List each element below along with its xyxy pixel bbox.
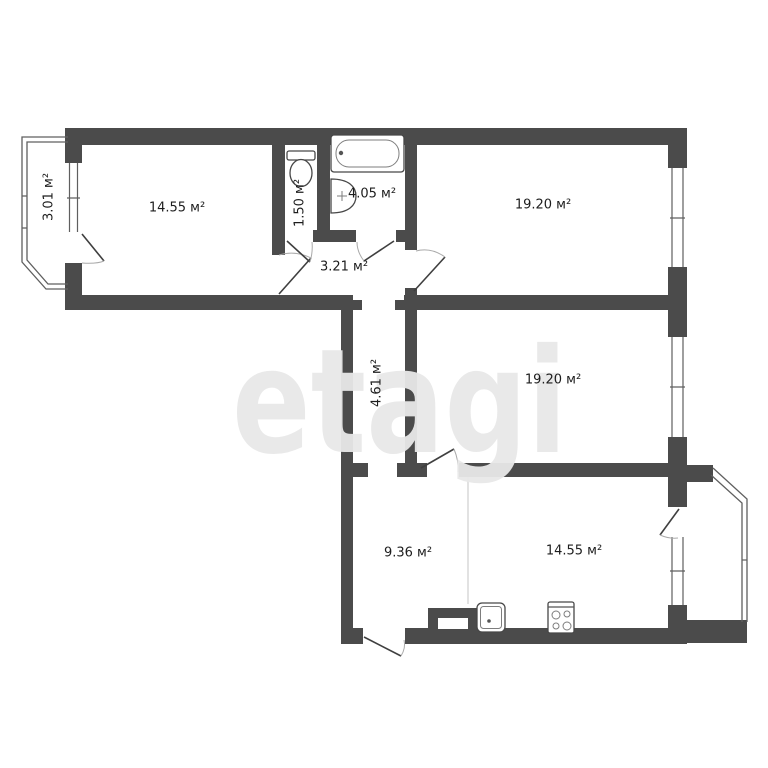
door-entrance bbox=[364, 637, 405, 656]
wall-segment bbox=[668, 437, 687, 507]
wall-segment bbox=[687, 620, 747, 643]
wall-segment bbox=[272, 145, 285, 255]
door-wc bbox=[287, 241, 312, 262]
wall-segment bbox=[404, 295, 687, 310]
watermark: etagi bbox=[232, 330, 567, 475]
kitchen-sink-icon bbox=[477, 603, 505, 632]
window-kitchen bbox=[668, 537, 687, 605]
wall-segment bbox=[396, 230, 405, 242]
wall-segment bbox=[313, 230, 356, 242]
door-balcony-left bbox=[82, 234, 104, 263]
room-label-room-top-right: 19.20 м² bbox=[515, 198, 571, 213]
wall-segment bbox=[668, 128, 687, 168]
vent-shaft bbox=[428, 608, 477, 632]
window-top-right bbox=[668, 168, 687, 267]
window-middle-right bbox=[668, 337, 687, 437]
stove-icon bbox=[548, 602, 574, 633]
balcony-right-glazing bbox=[711, 468, 747, 622]
wall-segment bbox=[353, 300, 362, 310]
bathtub-icon bbox=[331, 135, 404, 172]
room-label-hallway: 3.21 м² bbox=[320, 260, 368, 275]
wall-segment bbox=[317, 145, 330, 230]
room-label-balcony-left: 3.01 м² bbox=[42, 173, 57, 221]
room-label-corridor: 4.61 м² bbox=[370, 359, 385, 407]
door-balcony-kitchen bbox=[660, 509, 679, 538]
room-label-entry-hall: 9.36 м² bbox=[384, 546, 432, 561]
door-bathroom bbox=[357, 241, 394, 261]
wall-segment bbox=[65, 145, 82, 163]
floor-plan: etagi 3.01 м² 14.55 м² 1.50 м² 4.05 м² 1… bbox=[0, 0, 768, 768]
wall-segment bbox=[395, 300, 404, 310]
room-label-room-middle-right: 19.20 м² bbox=[525, 373, 581, 388]
room-label-bathroom: 4.05 м² bbox=[348, 187, 396, 202]
wall-segment bbox=[341, 628, 363, 644]
door-room-top-right bbox=[414, 250, 445, 291]
wall-segment bbox=[668, 267, 687, 337]
room-label-wc: 1.50 м² bbox=[293, 179, 308, 227]
wall-segment bbox=[65, 295, 353, 310]
room-label-kitchen: 14.55 м² bbox=[546, 544, 602, 559]
room-label-room-top-left: 14.55 м² bbox=[149, 201, 205, 216]
window-left bbox=[65, 163, 82, 232]
wall-segment bbox=[687, 465, 713, 482]
wall-segment bbox=[405, 145, 417, 250]
